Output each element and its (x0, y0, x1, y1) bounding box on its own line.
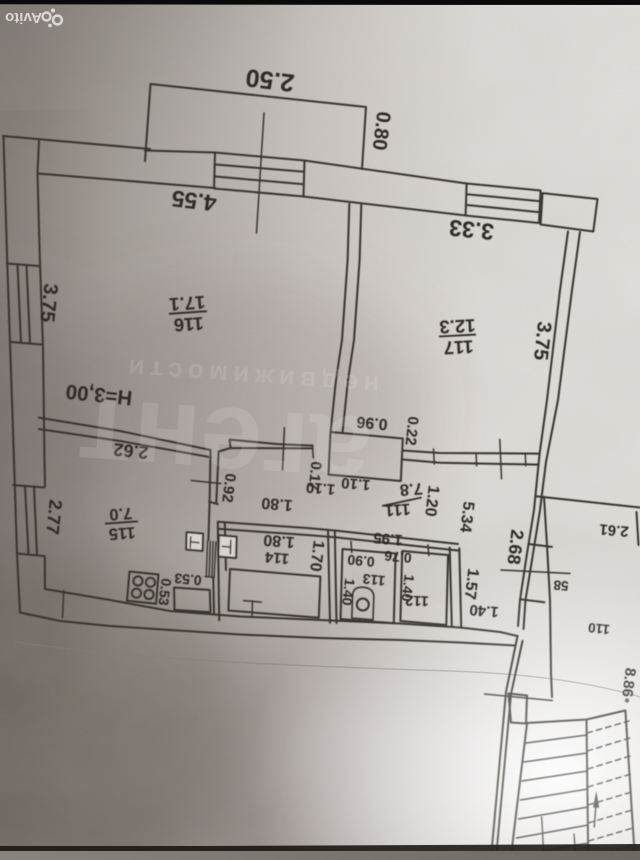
svg-text:7.0: 7.0 (109, 504, 133, 524)
svg-text:3.75: 3.75 (36, 282, 62, 323)
svg-text:0.90: 0.90 (347, 552, 376, 570)
svg-text:114: 114 (264, 548, 290, 567)
svg-text:0.53: 0.53 (155, 578, 174, 607)
svg-text:117: 117 (443, 336, 474, 359)
svg-text:2.77: 2.77 (42, 499, 66, 536)
svg-text:2.50: 2.50 (244, 63, 296, 97)
svg-text:1.95: 1.95 (373, 529, 404, 548)
svg-text:1.40: 1.40 (398, 574, 417, 603)
svg-text:0.53: 0.53 (174, 570, 203, 588)
svg-text:0.76: 0.76 (384, 548, 413, 566)
svg-text:113: 113 (362, 571, 386, 589)
svg-text:0.22: 0.22 (402, 416, 422, 447)
svg-text:7.8: 7.8 (399, 479, 423, 499)
svg-text:2.68: 2.68 (503, 528, 527, 565)
svg-text:115: 115 (108, 523, 136, 543)
svg-text:1.40: 1.40 (339, 578, 358, 607)
svg-text:0.80: 0.80 (368, 110, 395, 151)
svg-text:3.33: 3.33 (448, 215, 495, 246)
svg-text:4.55: 4.55 (170, 185, 218, 216)
svg-text:2.61: 2.61 (599, 520, 630, 539)
svg-text:3.75: 3.75 (529, 320, 555, 361)
svg-text:Avito: Avito (5, 9, 42, 26)
svg-text:116: 116 (173, 313, 204, 336)
svg-text:1.80: 1.80 (263, 531, 296, 551)
